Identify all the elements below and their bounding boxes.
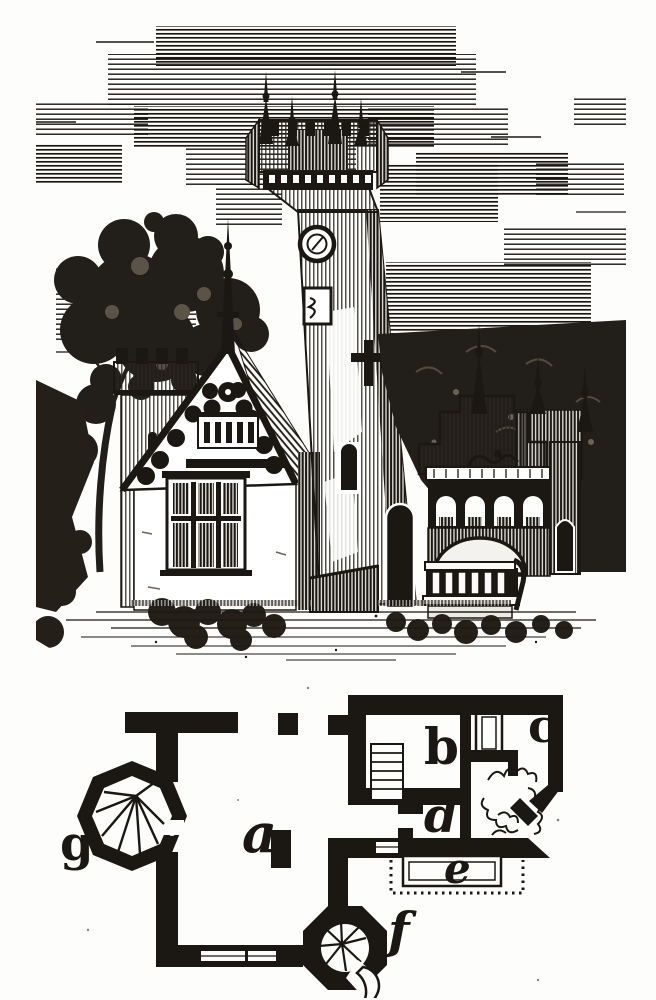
clock-face bbox=[300, 227, 334, 261]
plan-label-c: c bbox=[528, 699, 556, 753]
lancet-window bbox=[337, 442, 361, 494]
garden-bench bbox=[423, 560, 524, 618]
tower-plaque bbox=[304, 288, 331, 324]
mullioned-window bbox=[160, 471, 252, 576]
plan-label-e: e bbox=[444, 844, 471, 893]
plan-label-f: f bbox=[385, 901, 417, 960]
tower-door bbox=[386, 504, 414, 608]
plan-label-d: d bbox=[424, 788, 458, 844]
plan-label-a: a bbox=[242, 801, 277, 865]
closet-fixture-c bbox=[476, 710, 502, 756]
book-plate-page: a b c d e f g bbox=[0, 0, 656, 1000]
staircase-b bbox=[371, 744, 403, 800]
dentil-band bbox=[269, 175, 371, 183]
side-pier bbox=[550, 442, 580, 574]
plan-label-g: g bbox=[60, 816, 94, 872]
plan-label-b: b bbox=[424, 717, 459, 776]
pointed-doorway bbox=[556, 520, 574, 572]
left-shrubs bbox=[36, 380, 94, 648]
turret-f bbox=[303, 906, 396, 998]
floor-plan: a b c d e f g bbox=[58, 680, 578, 998]
spiral-stair-g bbox=[96, 780, 164, 854]
wall-joint-gap bbox=[168, 828, 176, 836]
lodge-engraving bbox=[36, 12, 626, 664]
vignette-corner-right bbox=[576, 587, 626, 664]
